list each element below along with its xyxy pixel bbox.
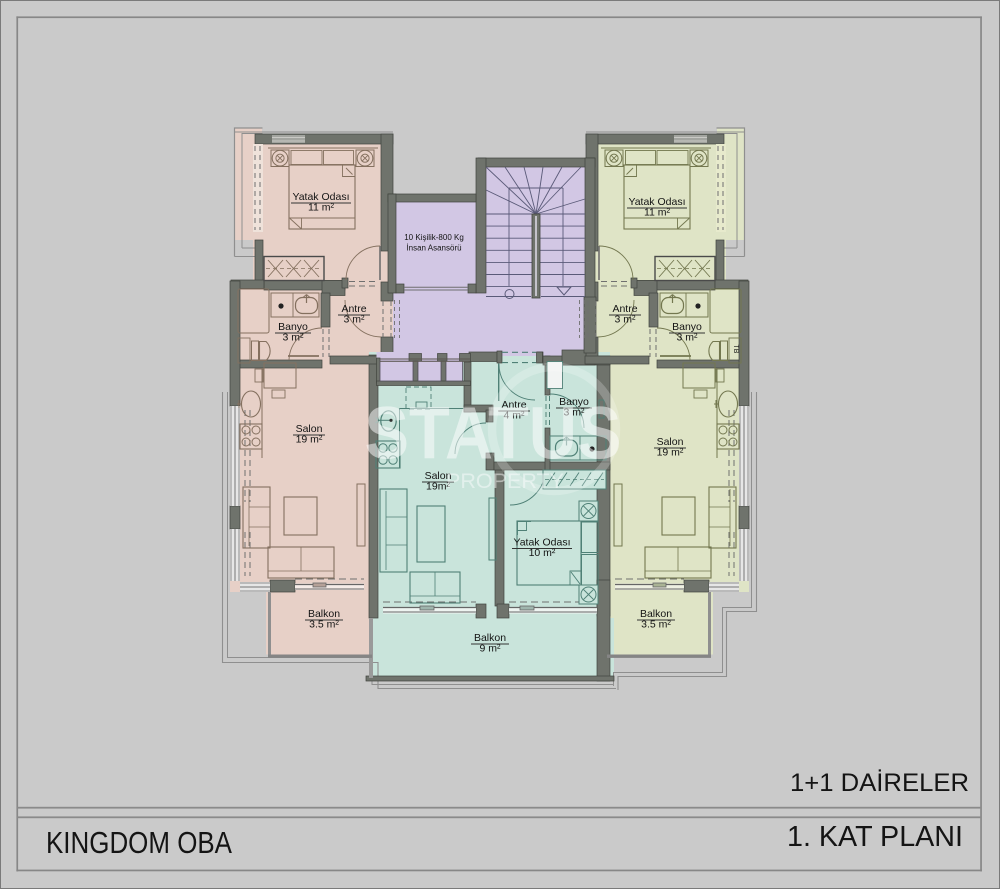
svg-text:PROPERTY: PROPERTY [446, 470, 564, 493]
svg-text:3.5 m²: 3.5 m² [641, 619, 671, 631]
svg-text:3 m²: 3 m² [677, 332, 699, 344]
svg-text:9 m²: 9 m² [480, 643, 502, 655]
svg-text:STATUS: STATUS [365, 392, 622, 475]
svg-text:3 m²: 3 m² [283, 332, 305, 344]
svg-text:10 m²: 10 m² [529, 547, 556, 559]
svg-text:10 Kişilik-800 Kg: 10 Kişilik-800 Kg [404, 233, 464, 242]
svg-text:1. KAT PLANI: 1. KAT PLANI [787, 821, 963, 853]
svg-text:19 m²: 19 m² [296, 434, 323, 446]
svg-text:3.5 m²: 3.5 m² [309, 619, 339, 631]
svg-text:3 m²: 3 m² [615, 314, 637, 326]
svg-text:19 m²: 19 m² [657, 447, 684, 459]
svg-text:İnsan Asansörü: İnsan Asansörü [406, 244, 461, 253]
svg-text:11 m²: 11 m² [308, 202, 335, 214]
svg-text:3 m²: 3 m² [344, 314, 366, 326]
svg-text:11 m²: 11 m² [644, 207, 671, 219]
svg-text:1+1 DAİRELER: 1+1 DAİRELER [790, 768, 969, 797]
svg-text:KINGDOM OBA: KINGDOM OBA [46, 825, 232, 860]
svg-text:TB: TB [732, 345, 739, 354]
